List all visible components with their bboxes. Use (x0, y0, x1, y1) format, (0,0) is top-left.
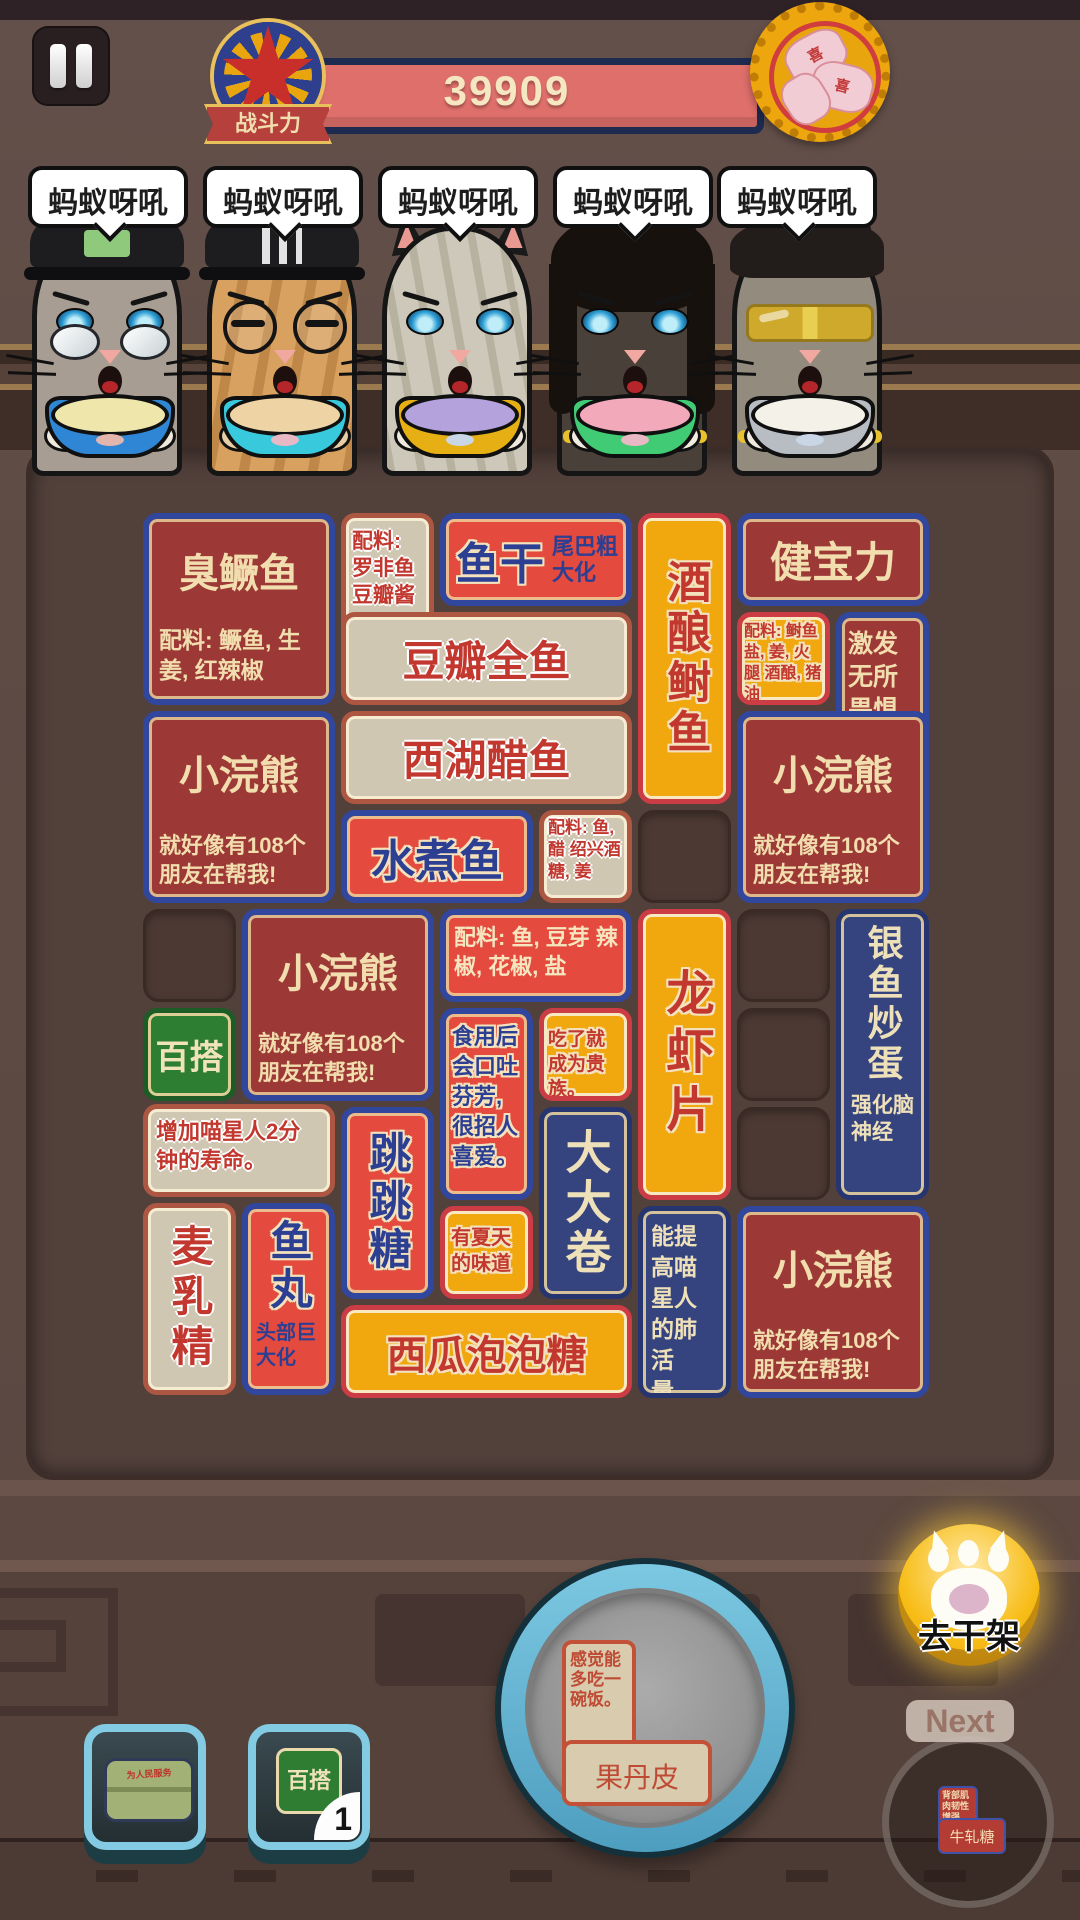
tile-desc: 头部巨大化 (256, 1321, 321, 1371)
round-glasses-icon (293, 300, 347, 354)
tile-dadajuan[interactable]: 大大卷 (539, 1107, 632, 1299)
cat-food-bowl (570, 396, 700, 458)
tile-desc: 就好像有108个朋友在帮我! (159, 831, 319, 889)
pause-icon (50, 44, 66, 88)
tile-boiled-fish[interactable]: 水煮鱼 (341, 810, 533, 903)
cat-food-bowl (745, 396, 875, 458)
tile-name: 豆瓣全鱼 (402, 628, 570, 689)
tile-popping-candy[interactable]: 跳跳糖 (341, 1107, 434, 1299)
tile-prawn-cracker[interactable]: 龙虾片 (638, 909, 731, 1200)
power-bar: 39909 (250, 58, 764, 134)
tile-name: 酒酿鲥鱼 (653, 559, 717, 759)
tile-desc: 吃了就成为贵族。 (548, 1027, 623, 1101)
serving-plate (495, 1558, 795, 1858)
round-glasses-icon (223, 300, 277, 354)
tile-desc: 配料: 鱼, 豆芽 辣椒, 花椒, 盐 (454, 923, 618, 981)
board-empty-cell[interactable] (737, 1107, 830, 1200)
tile-dadajuan-desc[interactable]: 能提高喵星人的肺活量。 (638, 1206, 731, 1398)
tile-name: 百搭 (156, 1030, 224, 1079)
board-ledge (0, 1480, 1080, 1496)
tile-fish-jerky[interactable]: 鱼干 尾巴粗大化 (440, 513, 632, 606)
cat-food-bowl (220, 396, 350, 458)
fight-button-label: 去干架 (898, 1609, 1040, 1658)
item-slot-wildcard[interactable]: 百搭 1 (248, 1724, 370, 1850)
cat-food-bowl (45, 396, 175, 458)
top-strip (0, 0, 1080, 20)
speech-bubble: 蚂蚁呀吼 (28, 166, 188, 228)
tile-name: 西湖醋鱼 (402, 727, 570, 788)
tile-name: 小浣熊 (149, 743, 329, 801)
next-tile-nougat: 牛轧糖 (938, 1818, 1006, 1854)
board-empty-cell[interactable] (737, 1008, 830, 1101)
tile-desc: 能提高喵星人的肺活量。 (651, 1221, 718, 1398)
fish-icon (621, 434, 649, 446)
tile-boiled-fish-ingredients[interactable]: 配料: 鱼, 豆芽 辣椒, 花椒, 盐 (440, 909, 632, 1002)
tile-jiuniang-shad[interactable]: 酒酿鲥鱼 (638, 513, 731, 804)
sunglasses-icon (746, 304, 874, 342)
lucky-candy-badge[interactable]: 喜 喜 (750, 2, 890, 142)
speech-bubble: 蚂蚁呀吼 (378, 166, 538, 228)
tile-douban-whole-fish[interactable]: 豆瓣全鱼 (341, 612, 632, 705)
tile-little-raccoon[interactable]: 小浣熊 就好像有108个朋友在帮我! (737, 711, 929, 903)
tile-jiuniang-shad-ingredients[interactable]: 配料: 鲥鱼 盐, 姜, 火腿 酒酿, 猪油 (737, 612, 830, 705)
tile-prawn-cracker-desc[interactable]: 吃了就成为贵族。 (539, 1008, 632, 1101)
next-label: Next (906, 1700, 1014, 1742)
tile-desc: 食用后会口吐芬芳, 很招人喜爱。 (452, 1022, 521, 1172)
go-fight-button[interactable]: 去干架 (898, 1524, 1040, 1666)
tile-little-raccoon[interactable]: 小浣熊 就好像有108个朋友在帮我! (737, 1206, 929, 1398)
fish-icon (796, 434, 824, 446)
tile-name: 果丹皮 (566, 1756, 708, 1796)
tile-name: 臭鳜鱼 (149, 541, 329, 599)
power-label: 战斗力 (204, 104, 332, 144)
power-value: 39909 (257, 67, 757, 115)
tile-jianbaoli[interactable]: 健宝力 (737, 513, 929, 606)
tile-desc: 增加喵星人2分钟的寿命。 (156, 1117, 322, 1175)
tile-name: 麦乳精 (159, 1224, 220, 1374)
glasses-icon (120, 324, 170, 360)
glasses-icon (50, 324, 100, 360)
tile-desc: 配料: 鳜鱼, 生姜, 红辣椒 (159, 625, 319, 685)
tile-malted-milk-desc[interactable]: 增加喵星人2分钟的寿命。 (143, 1104, 335, 1197)
game-screen: 39909 战斗力 喜 喜 蚂蚁呀吼 蚂蚁呀吼 蚂蚁呀吼 蚂蚁呀吼 蚂蚁呀吼 (0, 0, 1080, 1920)
pause-button[interactable] (32, 26, 110, 106)
tile-name: 鱼干 (456, 528, 544, 592)
paw-icon (988, 1546, 1009, 1572)
tile-little-raccoon[interactable]: 小浣熊 就好像有108个朋友在帮我! (242, 909, 434, 1101)
tile-name: 银鱼炒蛋 (857, 924, 909, 1084)
tile-desc: 就好像有108个朋友在帮我! (753, 831, 913, 889)
tile-popping-candy-desc[interactable]: 食用后会口吐芬芳, 很招人喜爱。 (440, 1008, 533, 1200)
lattice-decoration (0, 1588, 118, 1716)
tile-desc: 就好像有108个朋友在帮我! (753, 1326, 913, 1384)
tile-malted-milk[interactable]: 麦乳精 (143, 1203, 236, 1395)
tile-name: 西瓜泡泡糖 (387, 1323, 587, 1381)
tile-watermelon-gum-desc[interactable]: 有夏天的味道 (440, 1206, 533, 1299)
tile-desc: 配料: 罗非鱼 豆瓣酱 (352, 528, 423, 609)
speech-bubble: 蚂蚁呀吼 (203, 166, 363, 228)
tile-name: 龙虾片 (650, 968, 720, 1142)
tile-desc: 配料: 鲥鱼 盐, 姜, 火腿 酒酿, 猪油 (744, 621, 823, 705)
tile-watermelon-gum[interactable]: 西瓜泡泡糖 (341, 1305, 632, 1398)
board-empty-cell[interactable] (737, 909, 830, 1002)
cat-food-bowl (395, 396, 525, 458)
tile-westlake-vinegar-fish-ingredients[interactable]: 配料: 鱼, 醋 绍兴酒 糖, 姜 (539, 810, 632, 903)
tile-desc: 配料: 鱼, 醋 绍兴酒 糖, 姜 (548, 817, 623, 883)
tile-little-raccoon[interactable]: 小浣熊 就好像有108个朋友在帮我! (143, 711, 335, 903)
fish-icon (271, 434, 299, 446)
tile-silverfish-scrambled-egg[interactable]: 银鱼炒蛋 强化脑神经 (836, 909, 929, 1200)
paw-icon (958, 1540, 979, 1566)
board-empty-cell[interactable] (638, 810, 731, 903)
tile-name: 小浣熊 (743, 1238, 923, 1296)
tile-desc: 感觉能多吃一碗饭。 (570, 1650, 628, 1710)
board-empty-cell[interactable] (143, 909, 236, 1002)
paw-icon (928, 1546, 949, 1572)
tile-desc: 尾巴粗大化 (552, 534, 626, 586)
speech-bubble: 蚂蚁呀吼 (553, 166, 713, 228)
tile-name: 健宝力 (770, 529, 896, 590)
fish-icon (96, 434, 124, 446)
tile-desc: 就好像有108个朋友在帮我! (258, 1029, 418, 1087)
tile-wildcard[interactable]: 百搭 (143, 1008, 236, 1101)
tile-name: 大大卷 (553, 1128, 619, 1278)
fish-icon (446, 434, 474, 446)
bag-label: 为人民服务 (107, 1764, 192, 1783)
tile-name: 鱼丸 (258, 1219, 319, 1315)
tile-desc: 有夏天的味道 (451, 1225, 522, 1277)
tile-westlake-vinegar-fish[interactable]: 西湖醋鱼 (341, 711, 632, 804)
pause-icon (76, 44, 92, 88)
tile-name: 水煮鱼 (371, 825, 503, 889)
tile-name: 跳跳糖 (357, 1131, 418, 1275)
tile-name: 小浣熊 (248, 941, 428, 999)
speech-bubble: 蚂蚁呀吼 (717, 166, 877, 228)
tile-desc: 强化脑神经 (851, 1092, 914, 1146)
current-tile-guodanpi[interactable]: 果丹皮 (562, 1740, 712, 1806)
army-bag-icon: 为人民服务 (104, 1758, 194, 1822)
tile-name: 牛轧糖 (940, 1826, 1004, 1847)
item-slot-army-bag[interactable]: 为人民服务 (84, 1724, 206, 1850)
tile-fish-ball[interactable]: 鱼丸 头部巨大化 (242, 1203, 335, 1395)
tile-name: 小浣熊 (743, 743, 923, 801)
tile-stinky-mandarin-fish[interactable]: 臭鳜鱼 配料: 鳜鱼, 生姜, 红辣椒 (143, 513, 335, 705)
